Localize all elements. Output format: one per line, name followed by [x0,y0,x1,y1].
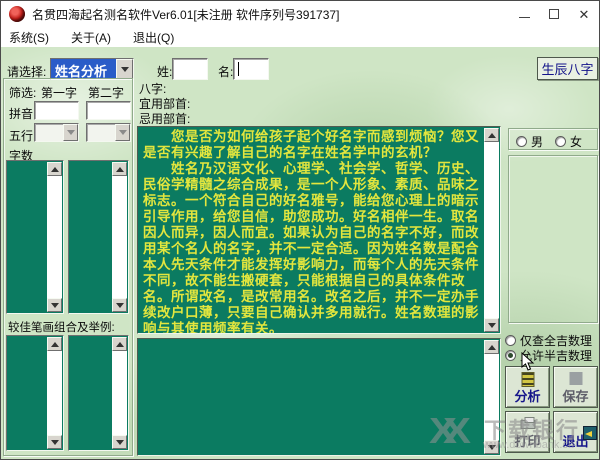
scroll-up-icon[interactable] [112,337,127,351]
pinyin-label: 拼音 [9,105,33,122]
scrollbar[interactable] [47,337,62,449]
app-window: 名贯四海起名测名软件Ver6.01[未注册 软件序列号391737] ✕ 系统(… [0,0,600,460]
strokes-list-second[interactable] [68,335,129,451]
bazi-button[interactable]: 生辰八字 [537,57,598,80]
chevron-down-icon [119,130,127,135]
wuxing-second-dropdown[interactable] [115,124,130,141]
chevron-down-icon [121,67,129,72]
minimize-button[interactable] [509,1,539,27]
wuxing-combobox-first[interactable] [34,123,79,142]
scroll-down-icon[interactable] [112,298,127,312]
gender-male-label: 男 [531,133,543,150]
gender-female-label: 女 [570,133,582,150]
save-icon [569,372,582,385]
save-button-label: 保存 [562,390,588,404]
radio-icon [555,136,566,147]
info-groupbox [508,155,598,323]
wuxing-first-value [35,124,63,141]
intro-scrollbar[interactable] [484,128,499,332]
menu-bar: 系统(S) 关于(A) 退出(Q) [1,27,599,47]
mouse-cursor-icon [521,352,535,372]
avoid-radicals-label: 忌用部首: [139,110,190,127]
scroll-down-icon[interactable] [484,440,499,454]
gender-female-radio[interactable]: 女 [555,133,582,150]
given-name-label: 名: [218,63,233,80]
radio-icon [516,136,527,147]
scroll-down-icon[interactable] [112,435,127,449]
strokes-combo-label: 较佳笔画组合及举例: [8,319,115,335]
scrollbar[interactable] [47,162,62,312]
scroll-down-icon[interactable] [47,298,62,312]
intro-text: 您是否为如何给孩子起个好名字而感到烦恼？您又是否有兴趣了解自己的名字在姓名学中的… [143,129,480,333]
analyze-button[interactable]: 分析 [505,366,550,408]
result-scrollbar[interactable] [484,340,499,454]
menu-about[interactable]: 关于(A) [71,29,111,46]
text-caret [238,62,239,76]
radio-icon [505,350,516,361]
scroll-up-icon[interactable] [112,162,127,176]
wuxing-combobox-second[interactable] [86,123,131,142]
scroll-up-icon[interactable] [47,337,62,351]
surname-label: 姓: [157,63,172,80]
minimize-icon [519,17,530,18]
scroll-up-icon[interactable] [47,162,62,176]
scrollbar[interactable] [112,162,127,312]
exit-icon [583,426,597,440]
save-button[interactable]: 保存 [553,366,598,408]
pinyin-input-first[interactable] [34,101,79,120]
wuxing-first-dropdown[interactable] [63,124,78,141]
print-button[interactable]: 打印 [505,411,550,453]
window-title: 名贯四海起名测名软件Ver6.01[未注册 软件序列号391737] [32,6,339,23]
gender-male-radio[interactable]: 男 [516,133,543,150]
second-char-column-label: 第二字 [88,84,124,101]
close-button[interactable]: ✕ [569,1,599,27]
window-controls: ✕ [509,1,599,27]
menu-system[interactable]: 系统(S) [9,29,49,46]
close-icon: ✕ [579,8,590,21]
wuxing-second-value [87,124,115,141]
filter-label: 筛选: [9,84,36,101]
filter-panel: 筛选: 第一字 第二字 拼音 五行 字数 较佳笔画组合及举 [3,78,133,456]
mode-combobox-dropdown[interactable] [116,59,133,79]
scrollbar[interactable] [112,337,127,449]
scroll-down-icon[interactable] [484,318,499,332]
scroll-up-icon[interactable] [484,128,499,142]
maximize-icon [549,9,559,19]
menu-exit[interactable]: 退出(Q) [133,29,174,46]
print-button-label: 打印 [514,435,540,449]
char-count-list-second[interactable] [68,160,129,314]
first-char-column-label: 第一字 [41,84,77,101]
scroll-down-icon[interactable] [47,435,62,449]
gender-groupbox: 男 女 [508,128,598,150]
mode-combobox[interactable]: 姓名分析 [50,58,134,80]
pinyin-input-second[interactable] [86,101,131,120]
result-area[interactable] [137,338,501,456]
scroll-up-icon[interactable] [484,340,499,354]
radio-icon [505,335,516,346]
surname-input[interactable] [172,58,208,80]
mode-combobox-value: 姓名分析 [51,59,116,79]
option-semi-auspicious[interactable]: 允许半吉数理 [505,347,592,364]
chevron-down-icon [67,130,75,135]
strokes-list-first[interactable] [6,335,64,451]
app-icon [9,6,25,22]
print-icon [520,420,535,429]
analyze-icon [521,372,534,387]
analyze-button-label: 分析 [514,390,540,404]
char-count-list-first[interactable] [6,160,64,314]
exit-button[interactable]: 退出 [553,411,598,453]
title-bar[interactable]: 名贯四海起名测名软件Ver6.01[未注册 软件序列号391737] ✕ [1,1,599,27]
intro-text-area[interactable]: 您是否为如何给孩子起个好名字而感到烦恼？您又是否有兴趣了解自己的名字在姓名学中的… [137,126,501,334]
wuxing-label: 五行 [9,127,33,144]
maximize-button[interactable] [539,1,569,27]
given-name-input[interactable] [233,58,269,80]
